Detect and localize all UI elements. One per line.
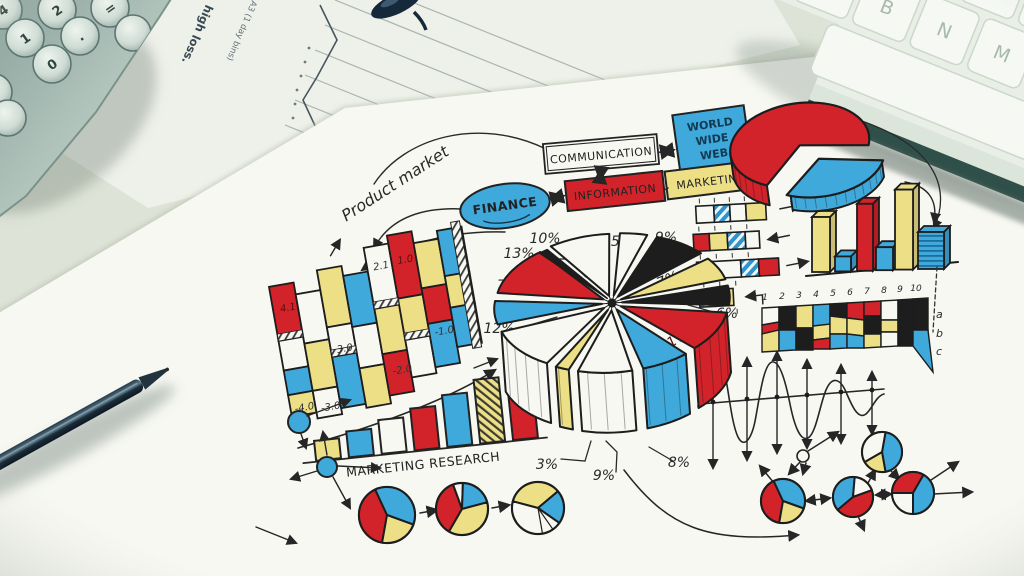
tick-7: 7 (864, 287, 870, 297)
net-pie-1 (761, 479, 805, 523)
hub-node-1 (288, 411, 310, 433)
desk-photo-scene: high loss. A3 (1 day bins) 4 2 = 1 . 0 (0, 0, 1024, 576)
pie-label-8: 8% (668, 455, 690, 471)
network-empty-node (797, 450, 809, 462)
tick-2: 2 (779, 292, 785, 302)
pie-label-9b: 9% (593, 468, 615, 484)
net-pie-3 (862, 432, 902, 472)
scene-svg: high loss. A3 (1 day bins) 4 2 = 1 . 0 (0, 0, 1024, 576)
ribbon-side-labels: a b c (936, 308, 943, 358)
marketing-bar (410, 406, 439, 450)
bar-3d (918, 232, 944, 269)
net-pie-2 (833, 477, 873, 517)
side-label-c: c (936, 345, 942, 358)
deco-pie-2 (436, 483, 488, 535)
marketing-bar (474, 377, 506, 443)
bar-3d (812, 217, 830, 272)
hub-node-2 (317, 457, 337, 477)
tick-4: 4 (813, 290, 819, 300)
tick-8: 8 (881, 286, 887, 296)
deco-pie-1 (359, 487, 415, 543)
marketing-bar (346, 429, 374, 457)
tick-3: 3 (796, 291, 802, 301)
tick-6: 6 (847, 288, 853, 298)
marketing-bar (442, 393, 472, 447)
pie-label-3: 3% (536, 457, 558, 473)
tick-10: 10 (910, 284, 922, 294)
bar-3d (835, 256, 851, 271)
side-label-b: b (936, 327, 943, 340)
tick-9: 9 (897, 285, 903, 295)
bar-3d (895, 190, 913, 270)
comm-info-double-arrow (600, 171, 601, 179)
tick-5: 5 (830, 289, 836, 299)
bar-3d (857, 204, 873, 271)
side-label-a: a (936, 308, 943, 321)
net-pie-4 (892, 472, 934, 514)
marketing-bar (378, 417, 406, 453)
bar-3d (876, 247, 893, 270)
tick-1: 1 (762, 293, 768, 303)
